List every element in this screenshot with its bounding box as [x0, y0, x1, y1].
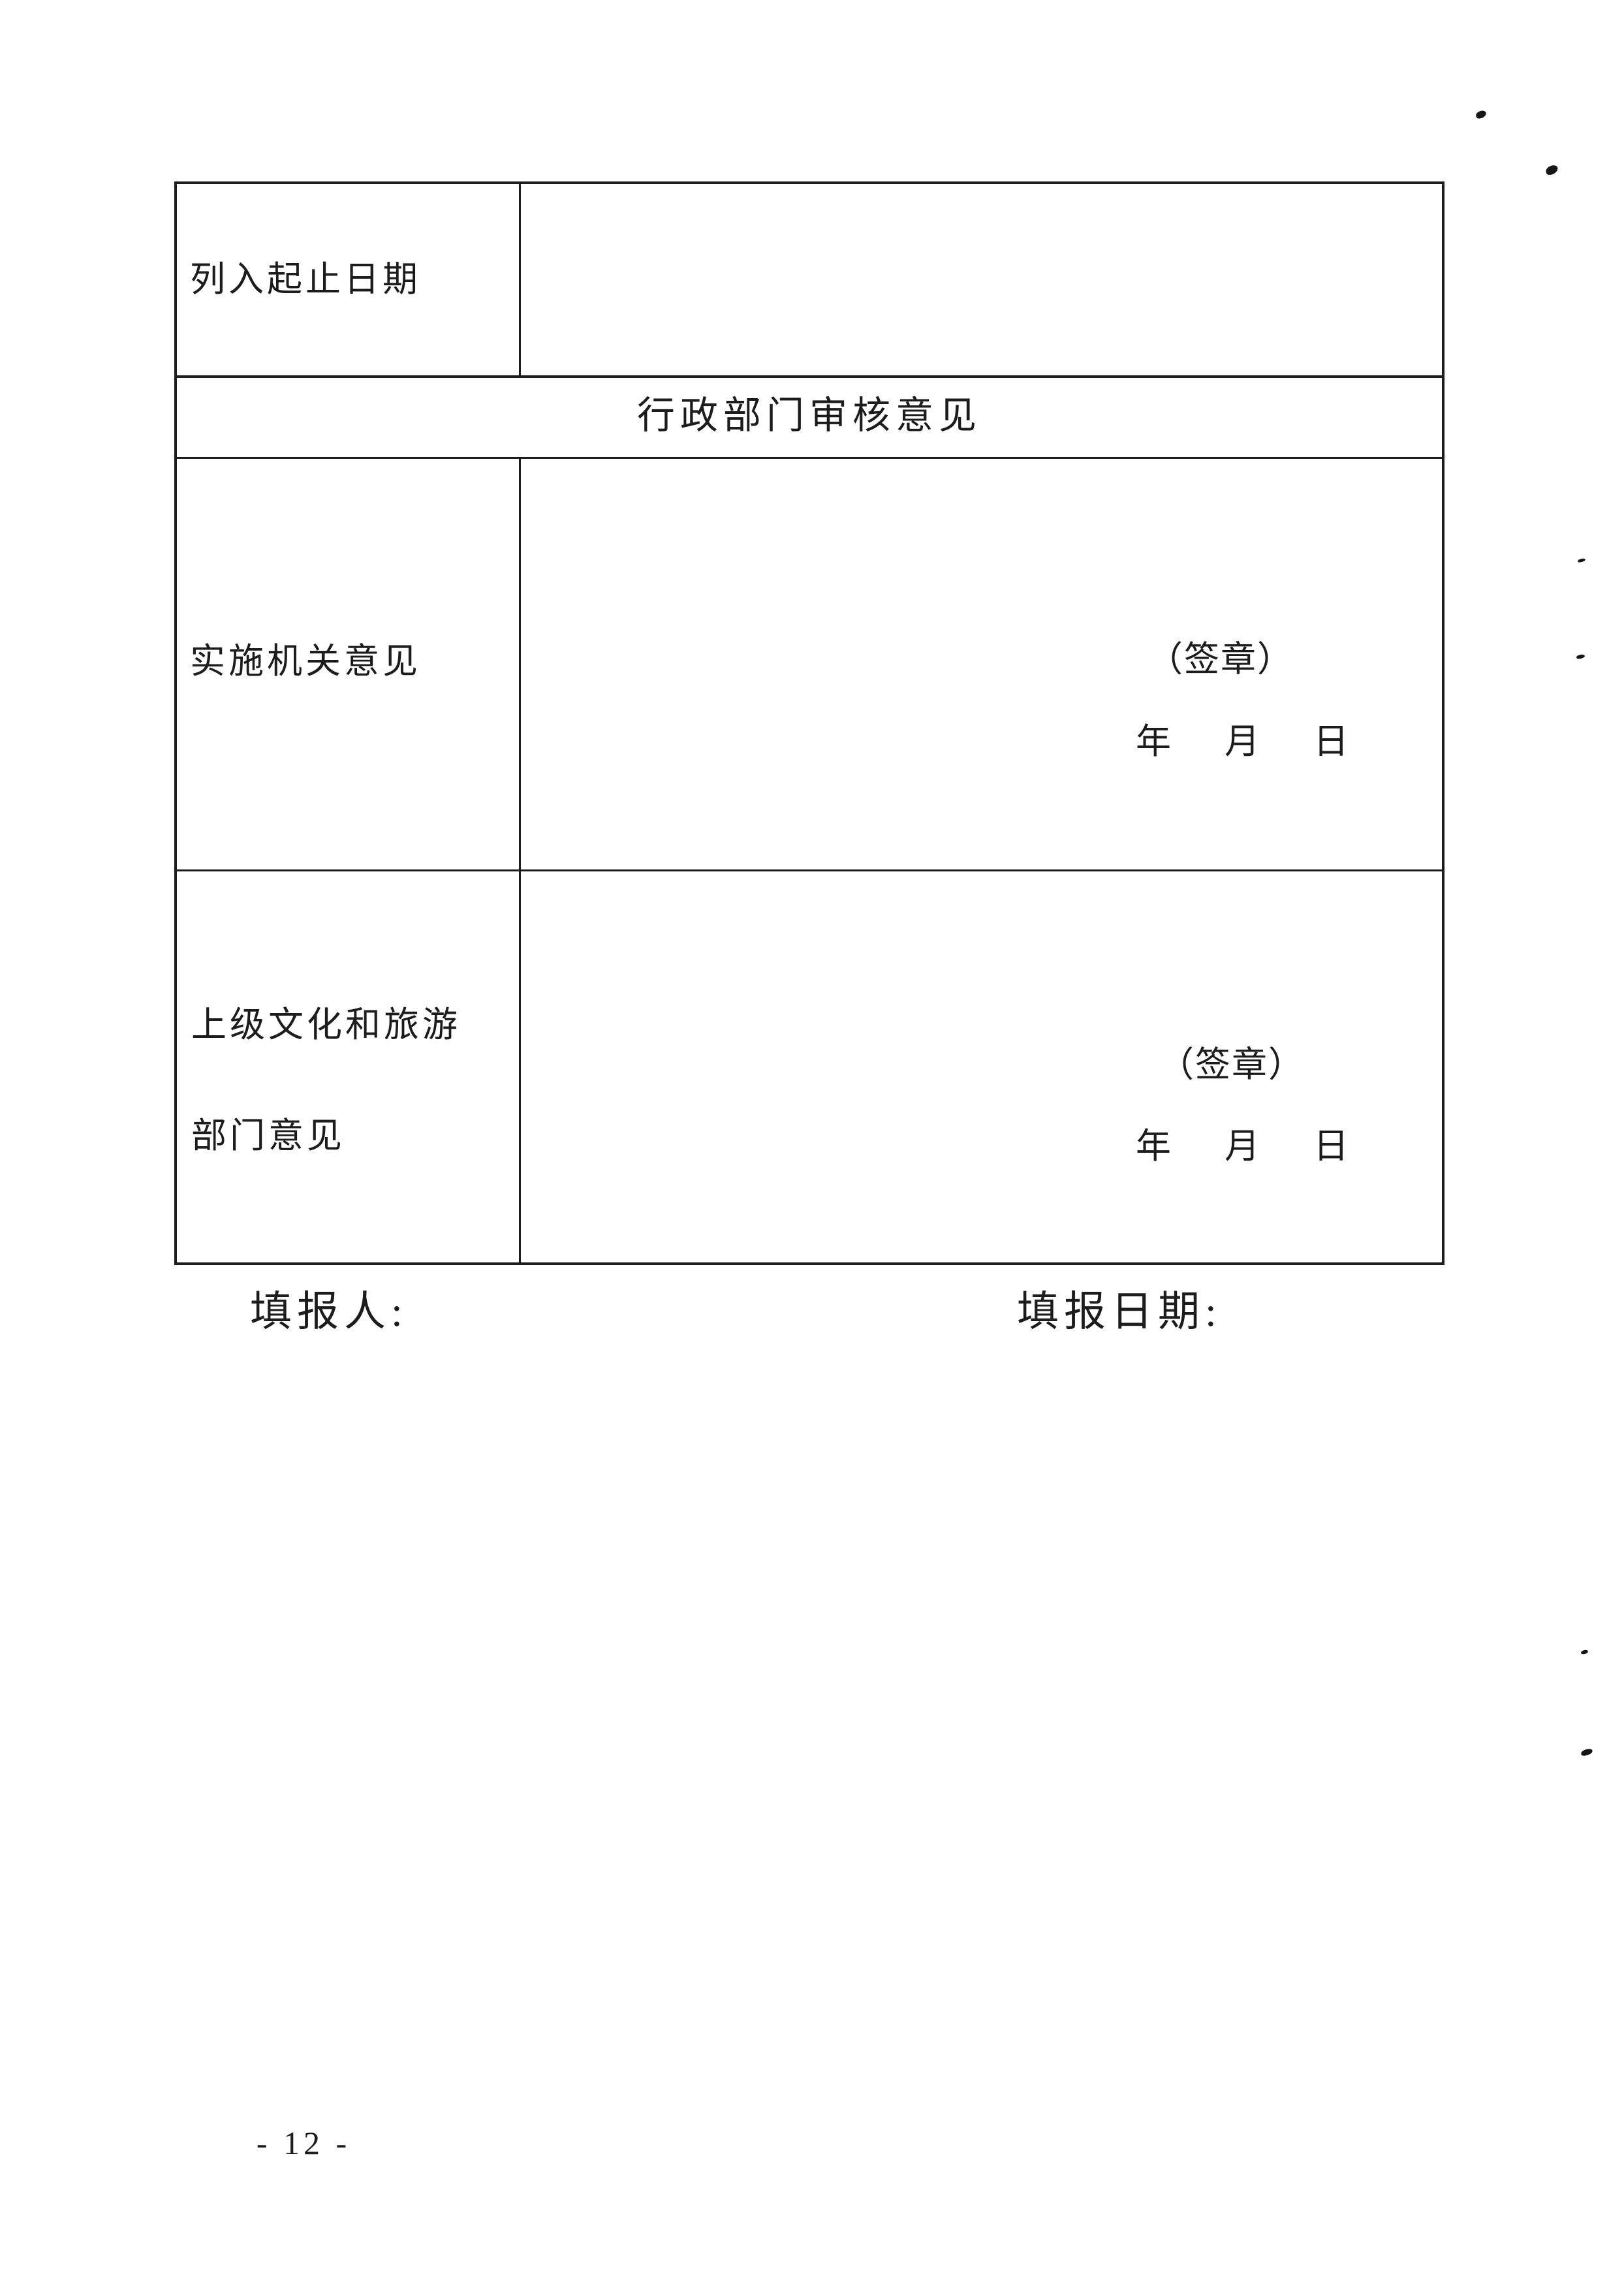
scan-speck	[1581, 1649, 1589, 1655]
preparer-label: 填报人:	[250, 1289, 408, 1335]
document-page: 列入起止日期 行政部门审核意见 实施机关意见 （签章） 年 月 日 上级文化和旅…	[0, 0, 1624, 2282]
superior-dept-label: 上级文化和旅游 部门意见	[191, 969, 461, 1191]
superior-dept-seal-label: （签章）	[1159, 1045, 1305, 1084]
review-table: 列入起止日期 行政部门审核意见 实施机关意见 （签章） 年 月 日 上级文化和旅…	[174, 181, 1444, 1265]
implementing-agency-date-line: 年 月 日	[1136, 722, 1358, 761]
fill-date-label: 填报日期:	[1017, 1289, 1222, 1335]
implementing-agency-label: 实施机关意见	[190, 642, 421, 681]
superior-dept-date-line: 年 月 日	[1136, 1127, 1358, 1166]
header-bottom-border	[177, 457, 1442, 459]
scan-speck	[1578, 558, 1586, 563]
row1-bottom-border	[177, 375, 1442, 378]
column-divider-bottom	[519, 459, 521, 1262]
scan-speck	[1544, 164, 1559, 176]
implementing-agency-seal-label: （签章）	[1148, 640, 1294, 679]
listing-period-label: 列入起止日期	[190, 260, 421, 299]
scan-speck	[1475, 110, 1487, 119]
row3-bottom-border	[177, 869, 1442, 871]
section-header: 行政部门审核意见	[177, 396, 1442, 435]
scan-speck	[1576, 654, 1585, 659]
superior-dept-label-line2: 部门意见	[191, 1080, 461, 1191]
scan-speck	[1580, 1748, 1593, 1757]
page-number: - 12 -	[222, 2125, 385, 2161]
superior-dept-label-line1: 上级文化和旅游	[191, 969, 461, 1080]
column-divider-top	[519, 184, 521, 375]
